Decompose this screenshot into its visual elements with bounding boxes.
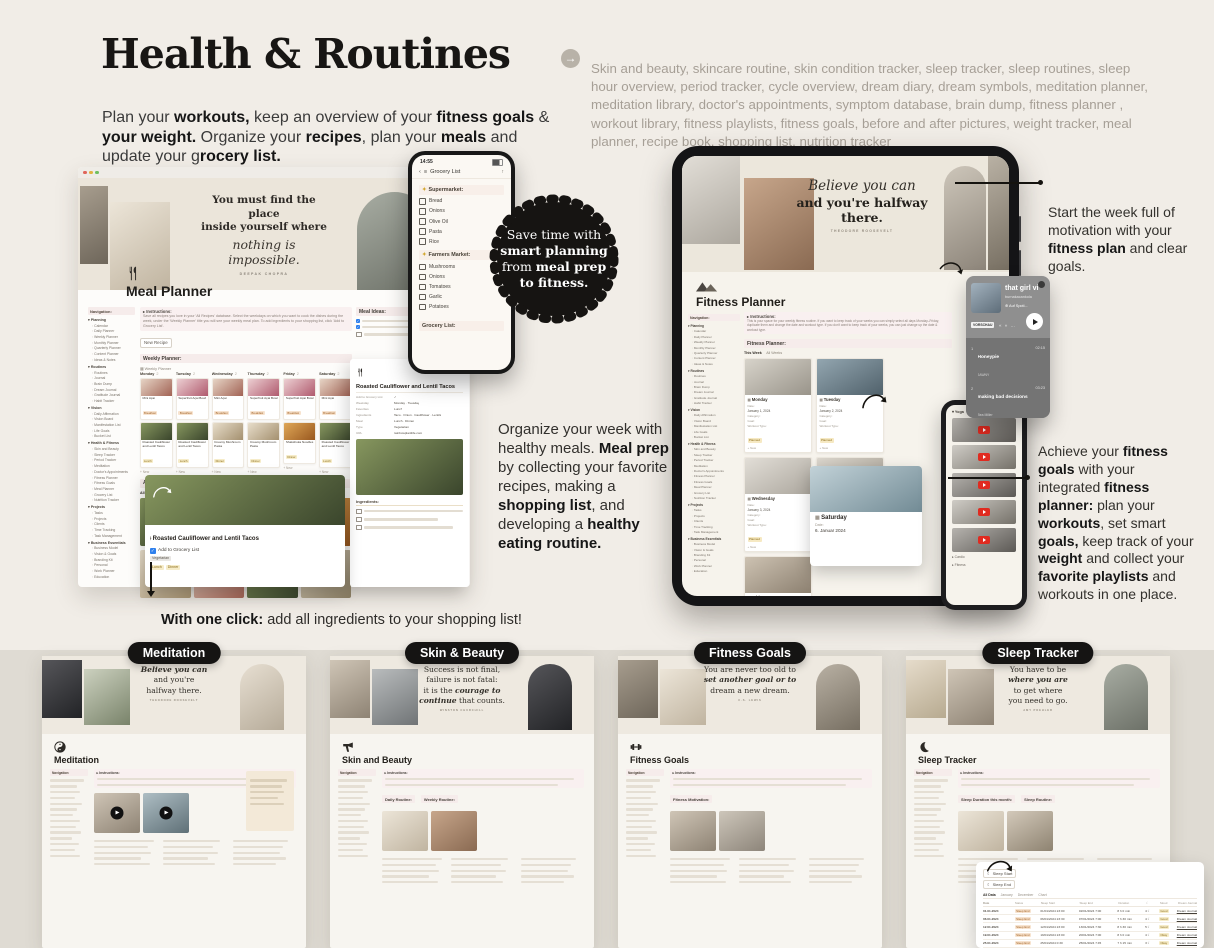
sidebar-item[interactable]: Monthly Planner (692, 346, 740, 350)
sidebar-item[interactable]: Calendar (92, 324, 135, 328)
card-page-title: Fitness Goals (630, 755, 689, 765)
fork-knife-icon (126, 266, 141, 281)
share-icon[interactable]: ↑ (502, 169, 505, 175)
meal-tag: Dinner (250, 459, 261, 463)
dream-journal-link[interactable]: Dream Journal (1177, 925, 1197, 929)
track-list: 1 HoneypieJAWNY 02:15 2 making bad decis… (966, 338, 1050, 418)
down-arrow-line (150, 562, 152, 592)
card-label-pill: Sleep Tracker (982, 642, 1093, 664)
add-card-button[interactable]: + New (319, 470, 352, 474)
sleep-table-row[interactable]: 06.01.2024 Sleep End 06/01/2024 23:30 07… (983, 915, 1197, 923)
recipe-card[interactable]: Creamy Mushroom Pasta Dinner (247, 422, 280, 468)
table-view-tab[interactable]: Chart (1038, 893, 1046, 897)
checkbox[interactable] (419, 238, 426, 245)
meal-tag: Breakfast (322, 411, 337, 415)
playlist-owner: burnakacankola (1005, 295, 1032, 299)
track-row[interactable]: 2 making bad decisionsBea Miller 03:23 (971, 385, 1045, 418)
recipe-card[interactable]: Superfruit Açai Bowl Breakfast (283, 378, 316, 420)
back-icon[interactable]: ‹ (419, 169, 421, 175)
sidebar-item[interactable]: Monthly Planner (92, 341, 135, 345)
one-click-note: With one click: add all ingredients to y… (161, 612, 522, 628)
card-page-icon (54, 741, 66, 753)
workout-day-card[interactable]: Monday Date: January 1, 2024 Category: G… (744, 358, 812, 453)
meal-tag: Dinner (286, 455, 297, 459)
sidebar-group[interactable]: Projects (688, 503, 740, 507)
yin-yang-icon (54, 741, 66, 753)
sidebar-item[interactable]: Habit Tracker (92, 399, 135, 403)
tablet-button (1019, 250, 1022, 276)
dream-journal-link[interactable]: Dream Journal (1177, 909, 1197, 913)
checkbox[interactable] (419, 264, 426, 271)
youtube-play-icon[interactable] (978, 508, 990, 516)
cover-arch-photo (1104, 664, 1148, 730)
recipe-image (320, 379, 351, 396)
moon-icon: ☾ (987, 882, 991, 887)
recipe-image (248, 379, 279, 396)
curved-arrow-icon (858, 390, 890, 412)
card-cover: Believe you canand you'rehalfway there. … (42, 656, 306, 734)
sidebar-item[interactable]: Routines (92, 371, 135, 375)
workout-day-card[interactable]: Wednesday Date: January 3, 2024 Category… (744, 457, 812, 552)
sidebar-item[interactable]: Weekly Planner (92, 335, 135, 339)
workout-videos-phone: Yoga CardioFitness (941, 400, 1027, 610)
sidebar-item[interactable]: Fitness Goals (92, 481, 135, 485)
property-row[interactable]: Add to Grocery List✓ (356, 395, 463, 399)
sidebar-item[interactable]: Habit Tracker (692, 401, 740, 405)
recipe-image (177, 423, 208, 440)
card-sidebar: Navigation: (50, 769, 88, 857)
card-cover: Success is not final,failure is not fata… (330, 656, 594, 734)
dream-journal-link[interactable]: Dream Journal (1177, 941, 1197, 945)
cover-photo (988, 156, 1009, 270)
instructions-callout: Instructions: (382, 769, 584, 788)
checkbox[interactable] (419, 294, 426, 301)
youtube-play-icon[interactable] (978, 536, 990, 544)
dream-journal-link[interactable]: Dream Journal (1177, 917, 1197, 921)
sidebar-item[interactable]: Work Planner (692, 564, 740, 568)
sidebar-item[interactable]: Work Planner (92, 569, 135, 573)
quality-tag: Good (1159, 909, 1169, 913)
cover-photo (80, 186, 108, 264)
play-button[interactable] (1026, 313, 1043, 330)
sidebar-item[interactable]: Projects (692, 514, 740, 518)
sidebar-item[interactable]: Sleep Tracker (92, 453, 135, 457)
card-cover: You are never too old toset another goal… (618, 656, 882, 734)
meal-tag: Breakfast (214, 411, 229, 415)
sidebar-item[interactable]: Fitness Goals (692, 480, 740, 484)
sidebar-item[interactable]: Time Tracking (92, 528, 135, 532)
sidebar-item[interactable]: Branding Kit (692, 553, 740, 557)
phone-page-title: Grocery List (430, 169, 460, 175)
sleep-table-row[interactable]: 12.01.2024 Sleep End 12/01/2024 23:00 13… (983, 923, 1197, 931)
checkbox[interactable] (419, 218, 426, 225)
property-row[interactable]: URLrainbowplantlife.com (356, 431, 463, 435)
recipe-card[interactable]: Mini Açai Breakfast (140, 378, 173, 420)
status-tag: Sleep End (1015, 925, 1031, 929)
sidebar-item[interactable]: Personal (92, 563, 135, 567)
board-column: Monday2 Mini Açai Breakfast Roasted Caul… (140, 372, 173, 474)
sidebar-item[interactable]: Daily Affirmation (92, 412, 135, 416)
sidebar-item[interactable]: Vision Board (692, 419, 740, 423)
moon-icon (918, 741, 930, 753)
sidebar-group[interactable]: Routines (688, 369, 740, 373)
instructions-callout: Instructions: (670, 769, 872, 788)
sidebar-item[interactable]: Fitness Planner (692, 474, 740, 478)
fitness-quote: Believe you can and you're halfway there… (782, 178, 942, 233)
youtube-play-icon[interactable] (978, 426, 990, 434)
card-cover: You have to bewhere you areto get wherey… (906, 656, 1170, 734)
meal-tag: Lunch (143, 459, 154, 463)
sidebar-item[interactable]: Meditation (692, 464, 740, 468)
mountains-icon (696, 280, 718, 292)
section-heading: Weekly Routine: (421, 795, 458, 803)
sidebar-item[interactable]: Bucket List (692, 435, 740, 439)
section-heading: Daily Routine: (382, 795, 415, 803)
status-tag: Planned (820, 438, 834, 443)
sleep-table-row[interactable]: 19.01.2024 Sleep End 19/01/2024 23:00 20… (983, 932, 1197, 940)
status-tag: Sleep End (1015, 941, 1031, 945)
sidebar-group[interactable]: Routines (88, 365, 135, 369)
table-view-tab[interactable]: December (1018, 893, 1034, 897)
sidebar-item[interactable]: Brain Dump (92, 382, 135, 386)
sidebar-item[interactable]: Meal Planner (92, 487, 135, 491)
sidebar-item[interactable]: Doctor's Appointments (92, 470, 135, 474)
property-row[interactable]: IngredientsTaco · Onion · Cauliflower · … (356, 413, 463, 417)
youtube-thumbnail[interactable] (952, 418, 1016, 442)
sidebar-item[interactable]: Manifestation List (92, 423, 135, 427)
checkbox[interactable] (419, 304, 426, 311)
connector-line (948, 477, 1027, 479)
preview-badge: VORSCHAU (971, 322, 994, 328)
add-card-button[interactable]: + New (247, 470, 280, 474)
content-photo (382, 811, 428, 851)
cover-photo (682, 156, 740, 244)
minimize-window-icon[interactable] (89, 171, 93, 175)
checked-checkbox-icon: ✓ (150, 548, 156, 554)
sidebar-item[interactable]: Clients (692, 519, 740, 523)
album-art (971, 283, 1001, 313)
quality-tag: Okay (1159, 941, 1169, 945)
clock: 14:55 (420, 159, 433, 165)
sidebar-item[interactable]: Nutrition Tracker (92, 498, 135, 502)
sidebar-item[interactable]: Projects (92, 517, 135, 521)
sidebar-item[interactable]: Skin and Beauty (692, 447, 740, 451)
card-body: Navigation: Instructions: Daily Routine:… (330, 769, 594, 948)
sidebar-item[interactable]: Content Planner (92, 352, 135, 356)
sidebar-item[interactable]: Period Tracker (92, 458, 135, 462)
open-spotify-link[interactable]: Auf Spoti... (1005, 303, 1028, 308)
page-title: Health & Routines (101, 30, 510, 78)
sidebar-item[interactable]: Personal (692, 558, 740, 562)
card-table-skeleton (94, 837, 296, 866)
add-card-button[interactable]: + New (283, 466, 316, 470)
meal-page-title: Meal Planner (126, 283, 212, 299)
sidebar-item[interactable]: Manifestation List (692, 424, 740, 428)
sidebar-item[interactable]: Ideas & Notes (692, 362, 740, 366)
sidebar-item[interactable]: Education (692, 569, 740, 573)
sidebar-item[interactable]: Gratitude Journal (692, 396, 740, 400)
fitness-page-title: Fitness Planner (696, 295, 785, 309)
checkbox[interactable] (356, 517, 362, 523)
content-photo (1007, 811, 1053, 851)
sidebar-item[interactable]: Journal (92, 376, 135, 380)
recipe-card[interactable]: Roasted Cauliflower and Lentil Tacos Lun… (176, 422, 209, 468)
add-card-button[interactable]: + New (212, 470, 245, 474)
sidebar-item[interactable]: Fitness Planner (92, 476, 135, 480)
youtube-thumbnail[interactable] (952, 528, 1016, 552)
workout-image (810, 466, 922, 512)
sidebar-item[interactable]: Quarterly Planner (92, 346, 135, 350)
video-group-toggle[interactable]: Fitness (952, 563, 1016, 567)
table-view-tab[interactable]: All Data (983, 893, 996, 897)
sidebar-item[interactable]: Life Goals (92, 429, 135, 433)
video-play-icon[interactable] (111, 806, 124, 819)
quote-attribution: THEODORE ROOSEVELT (782, 229, 942, 233)
sidebar-item[interactable]: Bucket List (92, 434, 135, 438)
popup-title: Roasted Cauliflower and Lentil Tacos (150, 536, 259, 542)
connector-line (955, 182, 1040, 184)
saturday-hover-card[interactable]: Saturday Date: 6. Januar 2024 (810, 466, 922, 566)
maximize-window-icon[interactable] (95, 171, 99, 175)
add-card-button[interactable]: + New (140, 470, 173, 474)
sidebar-item[interactable]: Task Management (92, 534, 135, 538)
sidebar-item[interactable]: Brain Dump (692, 385, 740, 389)
sidebar-item[interactable]: Period Tracker (692, 458, 740, 462)
sidebar-item[interactable]: Education (92, 575, 135, 579)
meal-sidebar: Navigation: Planning CalendarDaily Plann… (88, 307, 135, 581)
meal-tag: Lunch (178, 459, 189, 463)
sidebar-item[interactable]: Tasks (92, 511, 135, 515)
card-sidebar: Navigation: (626, 769, 664, 857)
sidebar-item[interactable]: Meal Planner (692, 485, 740, 489)
card-main: Instructions: Fitness Motivation: (670, 769, 872, 883)
weekly-board: Monday2 Mini Açai Breakfast Roasted Caul… (140, 372, 352, 474)
meal-tag: Breakfast (178, 411, 193, 415)
motivation-text: Start the week full of motivation with y… (1048, 204, 1196, 276)
weekly-view-label[interactable]: ▦ Weekly Planner (140, 366, 352, 371)
sidebar-group[interactable]: Health & Fitness (688, 442, 740, 446)
sidebar-group[interactable]: Business Essentials (688, 537, 740, 541)
recipe-image (284, 379, 315, 396)
quote-attribution: THEODORE ROOSEVELT (118, 699, 230, 703)
new-recipe-button[interactable]: New Recipe (140, 338, 172, 348)
checkbox[interactable] (419, 284, 426, 291)
recipe-image (320, 423, 351, 440)
sidebar-item[interactable]: Content Planner (692, 356, 740, 360)
card-quote: You are never too old toset another goal… (694, 665, 806, 702)
recipe-card[interactable]: Superfruit Açai Bowl Breakfast (176, 378, 209, 420)
card-body: Navigation: Instructions: Fitness Motiva… (618, 769, 882, 948)
checkbox[interactable] (419, 274, 426, 281)
sidebar-item[interactable]: Doctor's Appointments (692, 469, 740, 473)
recipe-detail-image (356, 439, 463, 495)
instructions-callout: Instructions: (958, 769, 1160, 788)
sidebar-item[interactable]: Weekly Planner (692, 340, 740, 344)
checkbox[interactable] (356, 509, 362, 515)
section-heading: Sleep Routine: (1021, 795, 1055, 803)
sleep-action-button[interactable]: ☾Sleep End (983, 880, 1015, 889)
add-card-button[interactable]: + New (745, 545, 811, 551)
sidebar-item[interactable]: Grocery List (692, 491, 740, 495)
content-photo (719, 811, 765, 851)
sidebar-group[interactable]: Vision (88, 406, 135, 410)
recipe-image (213, 423, 244, 440)
property-row[interactable]: FavoritesLunch (356, 407, 463, 411)
sidebar-group[interactable]: Planning (88, 318, 135, 322)
recipe-card[interactable]: Mini Açai Breakfast (212, 378, 245, 420)
recipe-image (248, 423, 279, 440)
sidebar-item[interactable]: Business Model (92, 546, 135, 550)
goals-text: Achieve your fitness goals with your int… (1038, 443, 1196, 604)
dream-journal-link[interactable]: Dream Journal (1177, 933, 1197, 937)
workout-image (745, 359, 811, 395)
workout-image (745, 458, 811, 494)
popup-image (145, 475, 345, 525)
recipe-card[interactable]: Roasted Cauliflower and Lentil Tacos Lun… (140, 422, 173, 468)
sleep-table-row[interactable]: 25.01.2024 Sleep End 25/01/2024 0:30 25/… (983, 940, 1197, 948)
checkbox[interactable] (419, 208, 426, 215)
sidebar-item[interactable]: Journal (692, 380, 740, 384)
youtube-thumbnail[interactable] (952, 500, 1016, 524)
recipe-card[interactable]: Mini Açai Breakfast (319, 378, 352, 420)
quality-tag: Good (1159, 925, 1169, 929)
content-photo (431, 811, 477, 851)
youtube-play-icon[interactable] (978, 481, 990, 489)
meal-tag: Breakfast (286, 411, 301, 415)
sidebar-group[interactable]: Business Essentials (88, 541, 135, 545)
sidebar-item[interactable]: Dream Journal (92, 388, 135, 392)
sidebar-item[interactable]: Routines (692, 374, 740, 378)
sidebar-item[interactable]: Daily Affirmation (692, 413, 740, 417)
sidebar-group[interactable]: Planning (688, 324, 740, 328)
recipe-image (284, 423, 315, 440)
type-tag: Vegetarian (150, 556, 171, 561)
cover-photo (330, 660, 370, 718)
checkbox[interactable] (419, 228, 426, 235)
sidebar-item[interactable]: Life Goals (692, 430, 740, 434)
recipe-card[interactable]: Roasted Cauliflower and Lentil Tacos Lun… (319, 422, 352, 468)
poster: Health & Routines Plan your workouts, ke… (0, 0, 1214, 948)
sidebar-item[interactable]: Grocery List (92, 493, 135, 497)
content-photo (143, 793, 189, 833)
fitness-sidebar: Navigation: Planning CalendarDaily Plann… (688, 314, 740, 596)
quote-attribution: WINSTON CHURCHILL (406, 709, 518, 713)
sidebar-item[interactable]: Vision Board (92, 417, 135, 421)
recipe-card[interactable]: Superfruit Açai Bowl Breakfast (247, 378, 280, 420)
add-card-button[interactable]: + New (817, 446, 883, 452)
content-photo (958, 811, 1004, 851)
arrow-circle-icon: → (561, 49, 580, 68)
meal-tag: Breakfast (143, 411, 158, 415)
property-row[interactable]: TypeVegetarian (356, 425, 463, 429)
playlist-title: that girl vi (1005, 285, 1038, 292)
tablet-button (1019, 216, 1022, 242)
sidebar-item[interactable]: Clients (92, 522, 135, 526)
fitness-cover: Believe you can and you're halfway there… (682, 156, 1009, 272)
sidebar-item[interactable]: Meditation (92, 464, 135, 468)
features-list: Skin and beauty, skincare routine, skin … (591, 60, 1148, 150)
card-page-title: Skin and Beauty (342, 755, 412, 765)
add-card-button[interactable]: + New (176, 470, 209, 474)
track-row[interactable]: 1 HoneypieJAWNY 02:15 (971, 345, 1045, 381)
sidebar-group[interactable]: Health & Fitness (88, 441, 135, 445)
sidebar-item[interactable]: Sleep Tracker (692, 453, 740, 457)
spotify-widget: that girl vi burnakacankola Auf Spoti...… (966, 276, 1050, 418)
content-photo (670, 811, 716, 851)
meal-tag: Dinner (214, 459, 225, 463)
mini-quote-card (246, 771, 294, 831)
property-row[interactable]: WeekdayMonday · Tuesday (356, 401, 463, 405)
section-heading: Fitness Motivation: (670, 795, 712, 803)
sleep-table-row[interactable]: 01.01.2024 Sleep End 01/01/2024 23:00 02… (983, 907, 1197, 915)
view-tab[interactable]: All Weeks (766, 351, 782, 355)
sidebar-item[interactable]: Dream Journal (692, 390, 740, 394)
view-tab[interactable]: This Week (744, 351, 762, 355)
sidebar-item[interactable]: Business Model (692, 542, 740, 546)
checkbox[interactable] (419, 198, 426, 205)
sidebar-group[interactable]: Vision (688, 408, 740, 412)
meal-tag: Dinner (166, 565, 181, 570)
table-view-tab[interactable]: January (1001, 893, 1013, 897)
sidebar-item[interactable]: Gratitude Journal (92, 393, 135, 397)
sidebar-item[interactable]: Daily Planner (692, 335, 740, 339)
property-row[interactable]: MealLunch · Dinner (356, 419, 463, 423)
sidebar-item[interactable]: Vision & Goals (92, 552, 135, 556)
sidebar-item[interactable]: Tasks (692, 508, 740, 512)
youtube-thumbnail[interactable] (952, 445, 1016, 469)
sidebar-item[interactable]: Branding Kit (92, 558, 135, 562)
sidebar-group[interactable]: Projects (88, 505, 135, 509)
youtube-play-icon[interactable] (978, 453, 990, 461)
weekly-planner-heading: Weekly Planner: (140, 354, 352, 363)
list-icon: ≡ (424, 169, 427, 175)
sidebar-item[interactable]: Calendar (692, 329, 740, 333)
board-column: Wednesday2 Mini Açai Breakfast Creamy Mu… (212, 372, 245, 474)
recipe-card[interactable]: Creamy Mushroom Pasta Dinner (212, 422, 245, 468)
workout-day-card[interactable]: Friday Date: January 5, 2024 Category: G… (744, 556, 812, 596)
add-card-button[interactable]: + New (745, 446, 811, 452)
template-preview-card: Meditation Believe you canand you'rehalf… (42, 656, 306, 948)
sidebar-item[interactable]: Nutrition Tracker (692, 496, 740, 500)
section-heading: Sleep Duration this month: (958, 795, 1015, 803)
board-column: Thursday2 Superfruit Açai Bowl Breakfast… (247, 372, 280, 474)
close-window-icon[interactable] (83, 171, 87, 175)
dumbbell-icon (630, 741, 642, 753)
player-controls[interactable]: « » … (999, 323, 1016, 328)
recipe-image (213, 379, 244, 396)
checkbox[interactable] (356, 525, 362, 531)
video-play-icon[interactable] (160, 806, 173, 819)
sidebar-item[interactable]: Ideas & Notes (92, 358, 135, 362)
cover-photo (618, 660, 658, 718)
recipe-popup[interactable]: Roasted Cauliflower and Lentil Tacos ✓Ad… (145, 475, 345, 587)
sparkle-icon: ✦ (422, 252, 427, 258)
sidebar-item[interactable]: Skin and Beauty (92, 447, 135, 451)
recipe-detail-panel: Roasted Cauliflower and Lentil Tacos Add… (350, 359, 469, 587)
sidebar-item[interactable]: Vision & Goals (692, 548, 740, 552)
video-group-toggle[interactable]: Cardio (952, 555, 1016, 559)
sidebar-item[interactable]: Quarterly Planner (692, 351, 740, 355)
card-table-skeleton (670, 855, 872, 884)
sidebar-item[interactable]: Time Tracking (692, 525, 740, 529)
sidebar-item[interactable]: Daily Planner (92, 329, 135, 333)
phone-status-bar: 14:55 (412, 155, 511, 166)
status-tag: Sleep End (1015, 909, 1031, 913)
recipe-card[interactable]: Shakshuka Noodles Dinner (283, 422, 316, 464)
card-main: Instructions: (94, 769, 296, 865)
board-column: Saturday2 Mini Açai Breakfast Roasted Ca… (319, 372, 352, 474)
sidebar-item[interactable]: Task Management (692, 530, 740, 534)
